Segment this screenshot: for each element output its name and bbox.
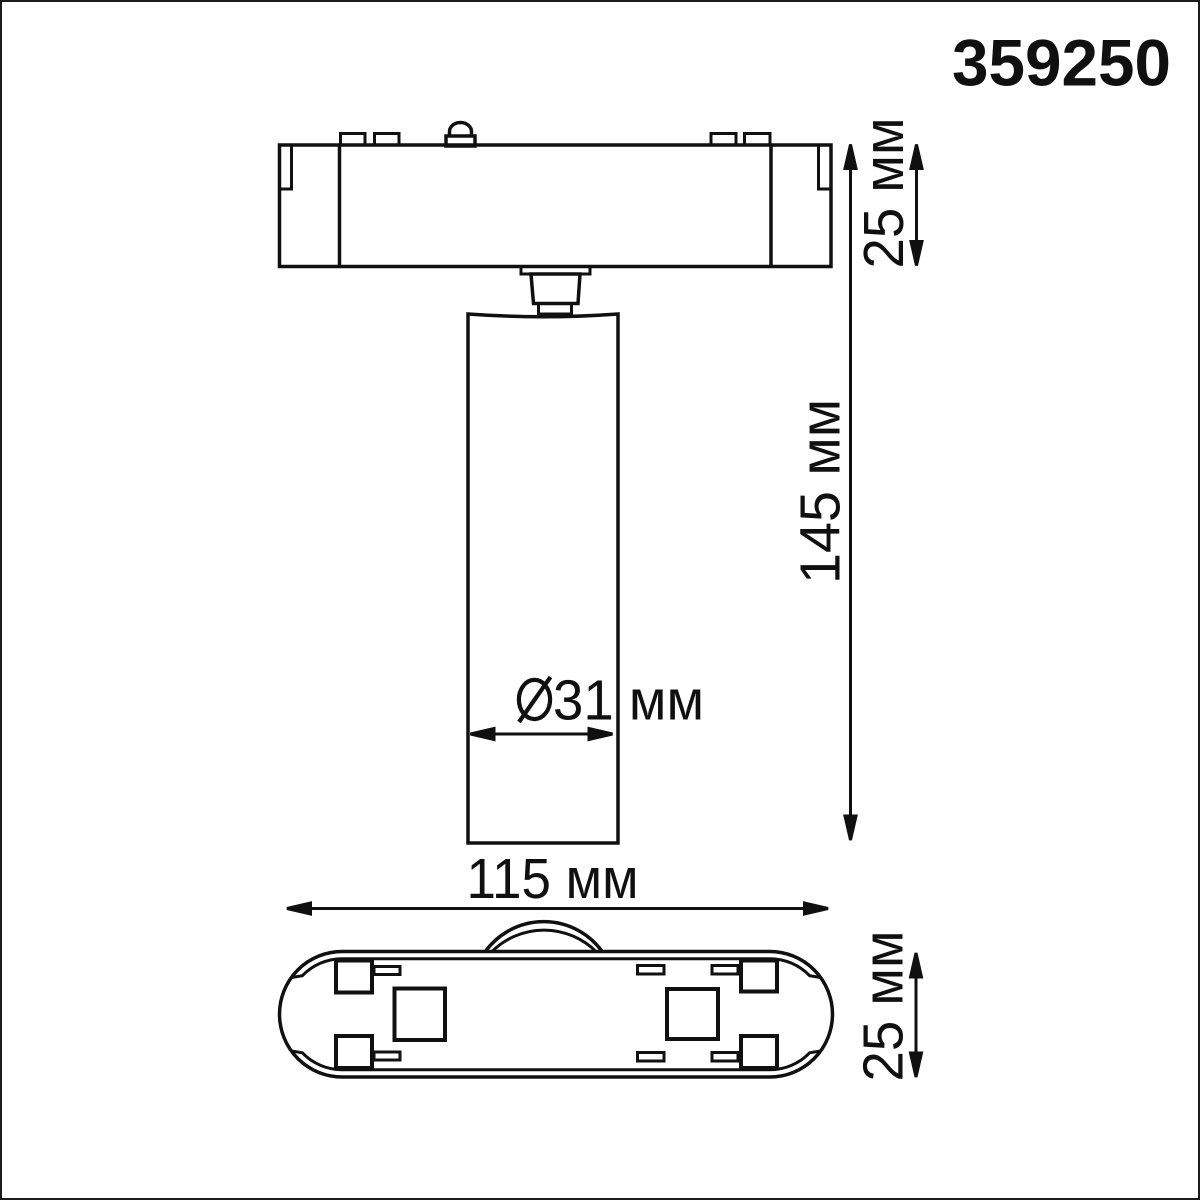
svg-text:359250: 359250: [952, 25, 1171, 99]
svg-text:25 мм: 25 мм: [852, 117, 915, 268]
svg-text:145 мм: 145 мм: [788, 399, 851, 584]
svg-text:25 мм: 25 мм: [851, 930, 914, 1081]
svg-text:31 мм: 31 мм: [553, 668, 704, 731]
svg-text:115 мм: 115 мм: [466, 847, 638, 910]
